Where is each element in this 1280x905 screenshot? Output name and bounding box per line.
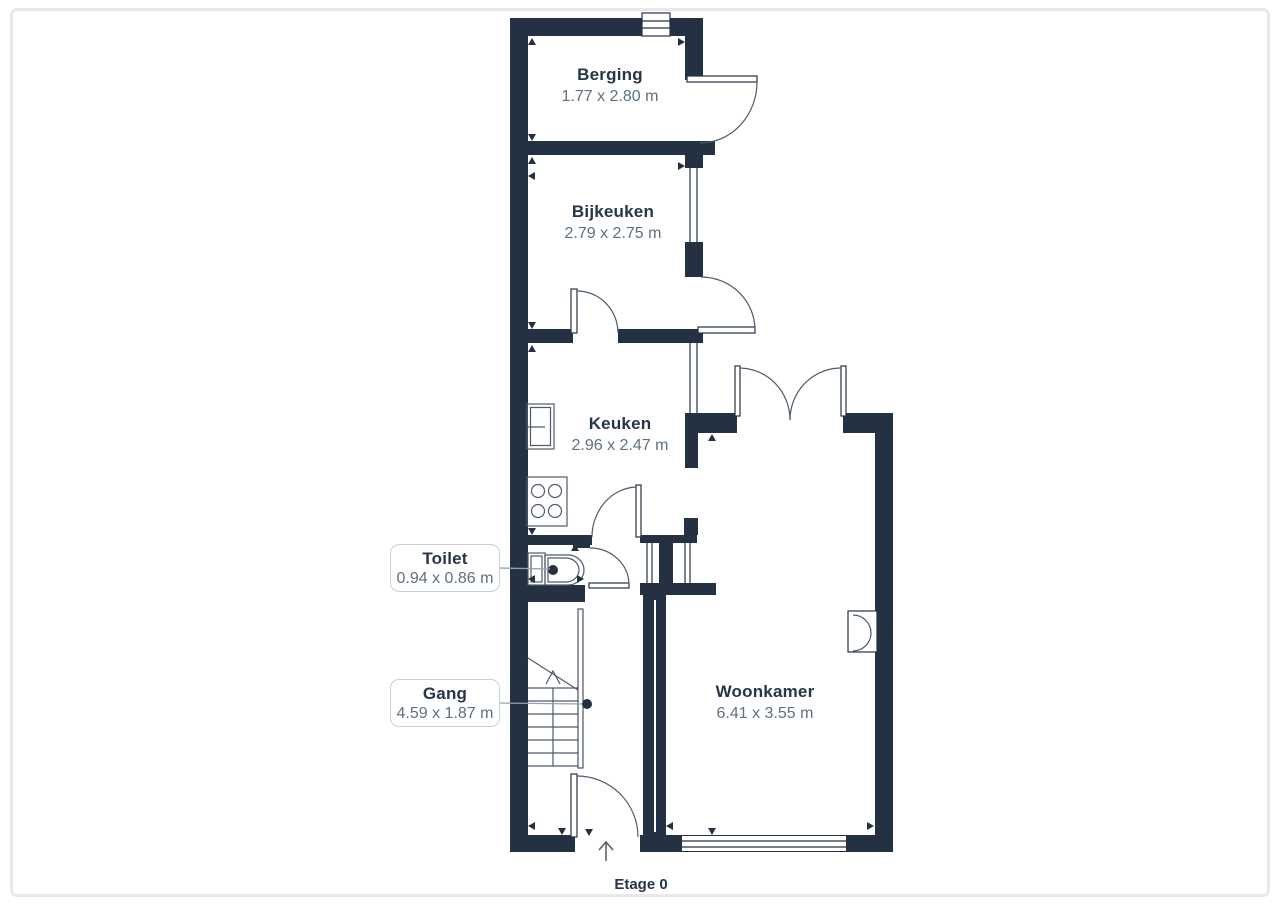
room-label-keuken: Keuken 2.96 x 2.47 m — [572, 414, 669, 456]
room-name: Woonkamer — [716, 682, 815, 702]
room-name: Berging — [562, 65, 659, 85]
room-name: Bijkeuken — [565, 202, 662, 222]
woonkamer-double-door — [735, 366, 846, 420]
sink-icon — [527, 404, 554, 449]
floor-label: Etage 0 — [614, 876, 667, 893]
front-door — [571, 774, 638, 837]
gang-leader-dot — [582, 699, 592, 709]
berging-window — [642, 13, 670, 36]
bijkeuken-window — [685, 168, 703, 242]
room-name: Keuken — [572, 414, 669, 434]
room-dimensions: 6.41 x 3.55 m — [716, 704, 815, 724]
room-name: Gang — [423, 684, 467, 703]
room-label-woonkamer: Woonkamer 6.41 x 3.55 m — [716, 682, 815, 724]
stairs-icon — [528, 609, 583, 768]
room-dimensions: 2.79 x 2.75 m — [565, 224, 662, 244]
keuken-window — [685, 343, 703, 413]
room-dimensions: 1.77 x 2.80 m — [562, 87, 659, 107]
room-dimensions: 0.94 x 0.86 m — [397, 569, 494, 588]
room-name: Toilet — [422, 549, 467, 568]
radiator-icon — [848, 611, 877, 652]
room-label-box-toilet: Toilet 0.94 x 0.86 m — [390, 544, 500, 592]
berging-exterior-door — [687, 76, 757, 143]
room-dimensions: 2.96 x 2.47 m — [572, 436, 669, 456]
stove-icon — [527, 477, 567, 526]
windows — [642, 13, 846, 851]
woonkamer-window — [682, 836, 846, 851]
bijkeuken-keuken-door — [571, 289, 618, 333]
keuken-gang-door — [592, 485, 641, 537]
floorplan-canvas: Berging 1.77 x 2.80 m Bijkeuken 2.79 x 2… — [0, 0, 1280, 905]
bijkeuken-exterior-door — [698, 277, 755, 333]
entrance-arrow-icon — [599, 842, 613, 861]
room-label-berging: Berging 1.77 x 2.80 m — [562, 65, 659, 107]
room-label-box-gang: Gang 4.59 x 1.87 m — [390, 679, 500, 727]
toilet-door — [589, 548, 629, 588]
wall-seam — [654, 600, 656, 832]
room-dimensions: 4.59 x 1.87 m — [397, 704, 494, 723]
fixtures — [527, 404, 877, 861]
room-label-bijkeuken: Bijkeuken 2.79 x 2.75 m — [565, 202, 662, 244]
